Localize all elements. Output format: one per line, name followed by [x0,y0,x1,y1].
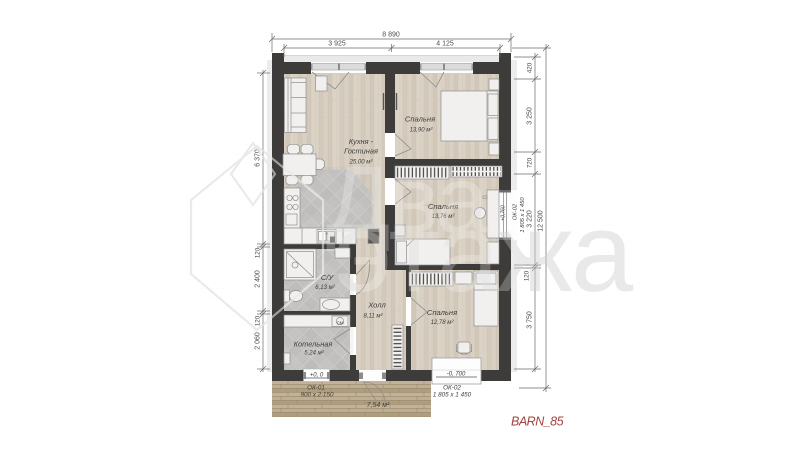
svg-text:3 925: 3 925 [328,41,346,48]
svg-text:6,13 м²: 6,13 м² [315,285,335,291]
svg-text:этажа: этажа [335,190,634,315]
svg-text:12,78 м²: 12,78 м² [431,320,455,326]
svg-text:2 400: 2 400 [255,270,262,288]
svg-text:420: 420 [527,62,534,73]
svg-text:Кухня -: Кухня - [349,137,374,146]
svg-text:4 125: 4 125 [436,41,454,48]
svg-text:3 250: 3 250 [527,107,534,125]
svg-text:BARN_85: BARN_85 [511,415,564,429]
svg-text:900 х 2 150: 900 х 2 150 [301,392,334,399]
svg-text:13,90 м²: 13,90 м² [410,128,434,134]
svg-text:ОК-01: ОК-01 [307,385,325,392]
svg-text:ОК-02: ОК-02 [443,385,461,392]
svg-text:120: 120 [255,315,262,326]
svg-text:7,54 м²: 7,54 м² [367,402,390,409]
svg-text:СМ: СМ [336,321,343,326]
svg-text:720: 720 [527,157,534,168]
svg-text:8 890: 8 890 [382,32,400,39]
svg-text:5,24 м²: 5,24 м² [304,351,324,357]
svg-text:Котельная: Котельная [294,340,333,349]
svg-text:-0, 700: -0, 700 [447,372,466,378]
svg-text:120: 120 [255,247,262,258]
svg-text:Спальня: Спальня [405,115,435,124]
svg-text:+0, 0: +0, 0 [310,373,324,379]
svg-text:1 805 х 1 450: 1 805 х 1 450 [433,392,472,399]
svg-text:2 060: 2 060 [255,332,262,350]
